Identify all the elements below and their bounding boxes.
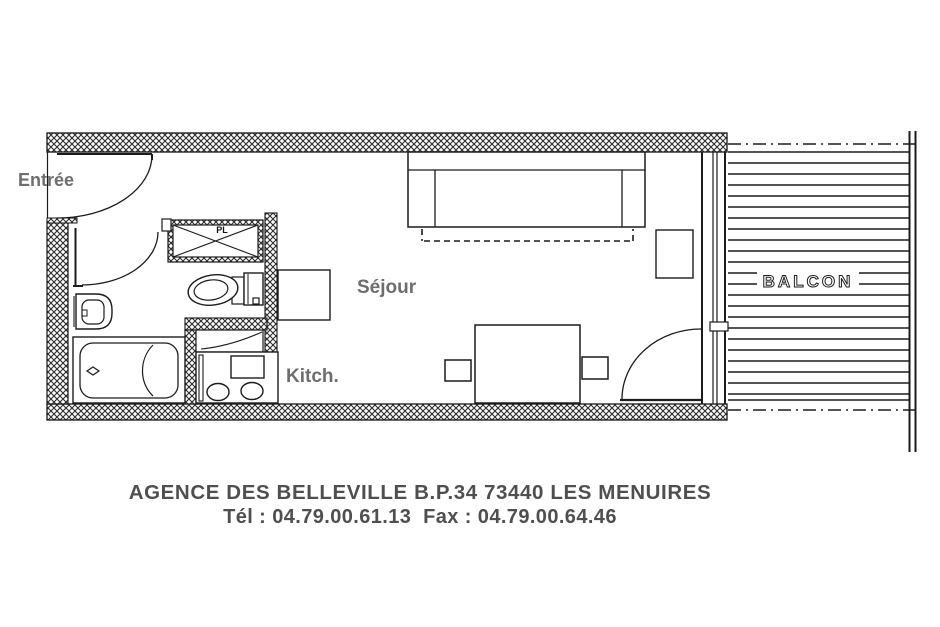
agency-phone-line: Tél : 04.79.00.61.13 Fax : 04.79.00.64.4… <box>223 506 617 528</box>
console-table <box>278 270 330 320</box>
balcony-door <box>620 329 702 400</box>
bathtub <box>73 337 185 403</box>
sofa-outline <box>408 152 645 227</box>
left-wall <box>47 222 68 404</box>
floor-plan-image: BALCON PL <box>0 0 940 627</box>
floor-plan-page: BALCON PL <box>0 0 940 627</box>
dining-set <box>445 325 608 403</box>
left-wall-door-stub <box>47 218 77 223</box>
closet-pl: PL <box>162 219 263 262</box>
balcony: BALCON <box>728 131 917 452</box>
window-mullion <box>710 322 728 331</box>
bathroom-door-leaf <box>73 228 83 286</box>
washbasin <box>74 294 112 329</box>
bathtub-outer <box>73 337 185 403</box>
closet-label: PL <box>216 225 228 235</box>
entrance-label: Entrée <box>18 170 74 190</box>
sofa-bed <box>408 152 645 241</box>
top-wall <box>47 133 727 152</box>
dining-table <box>475 325 580 403</box>
bathroom-partition-wall <box>265 213 277 352</box>
balcony-railing <box>910 131 916 452</box>
bathroom-door-swing-arc <box>82 232 158 285</box>
entrance-door-leaf <box>57 154 152 160</box>
kitchen-side-wall <box>185 330 196 404</box>
balcony-door-swing-arc <box>622 329 701 399</box>
window-frame-lines <box>713 152 717 404</box>
dining-chair-right <box>582 357 608 379</box>
closet-left-jamb <box>162 219 171 231</box>
agency-address-line: AGENCE DES BELLEVILLE B.P.34 73440 LES M… <box>129 481 712 504</box>
dining-chair-left <box>445 360 471 381</box>
kitchen-top-wall <box>185 318 267 330</box>
window-wall <box>702 152 728 404</box>
living-room-label: Séjour <box>357 277 417 298</box>
toilet <box>186 272 263 309</box>
agency-footer: AGENCE DES BELLEVILLE B.P.34 73440 LES M… <box>129 481 712 528</box>
balcony-label: BALCON <box>763 272 854 291</box>
toilet-flush <box>253 298 259 304</box>
sofa-bed-extension-dashed <box>422 229 633 241</box>
kitchen-label: Kitch. <box>286 366 339 387</box>
bathroom-door <box>73 228 158 286</box>
bottom-wall <box>47 404 727 420</box>
side-table <box>656 230 693 278</box>
